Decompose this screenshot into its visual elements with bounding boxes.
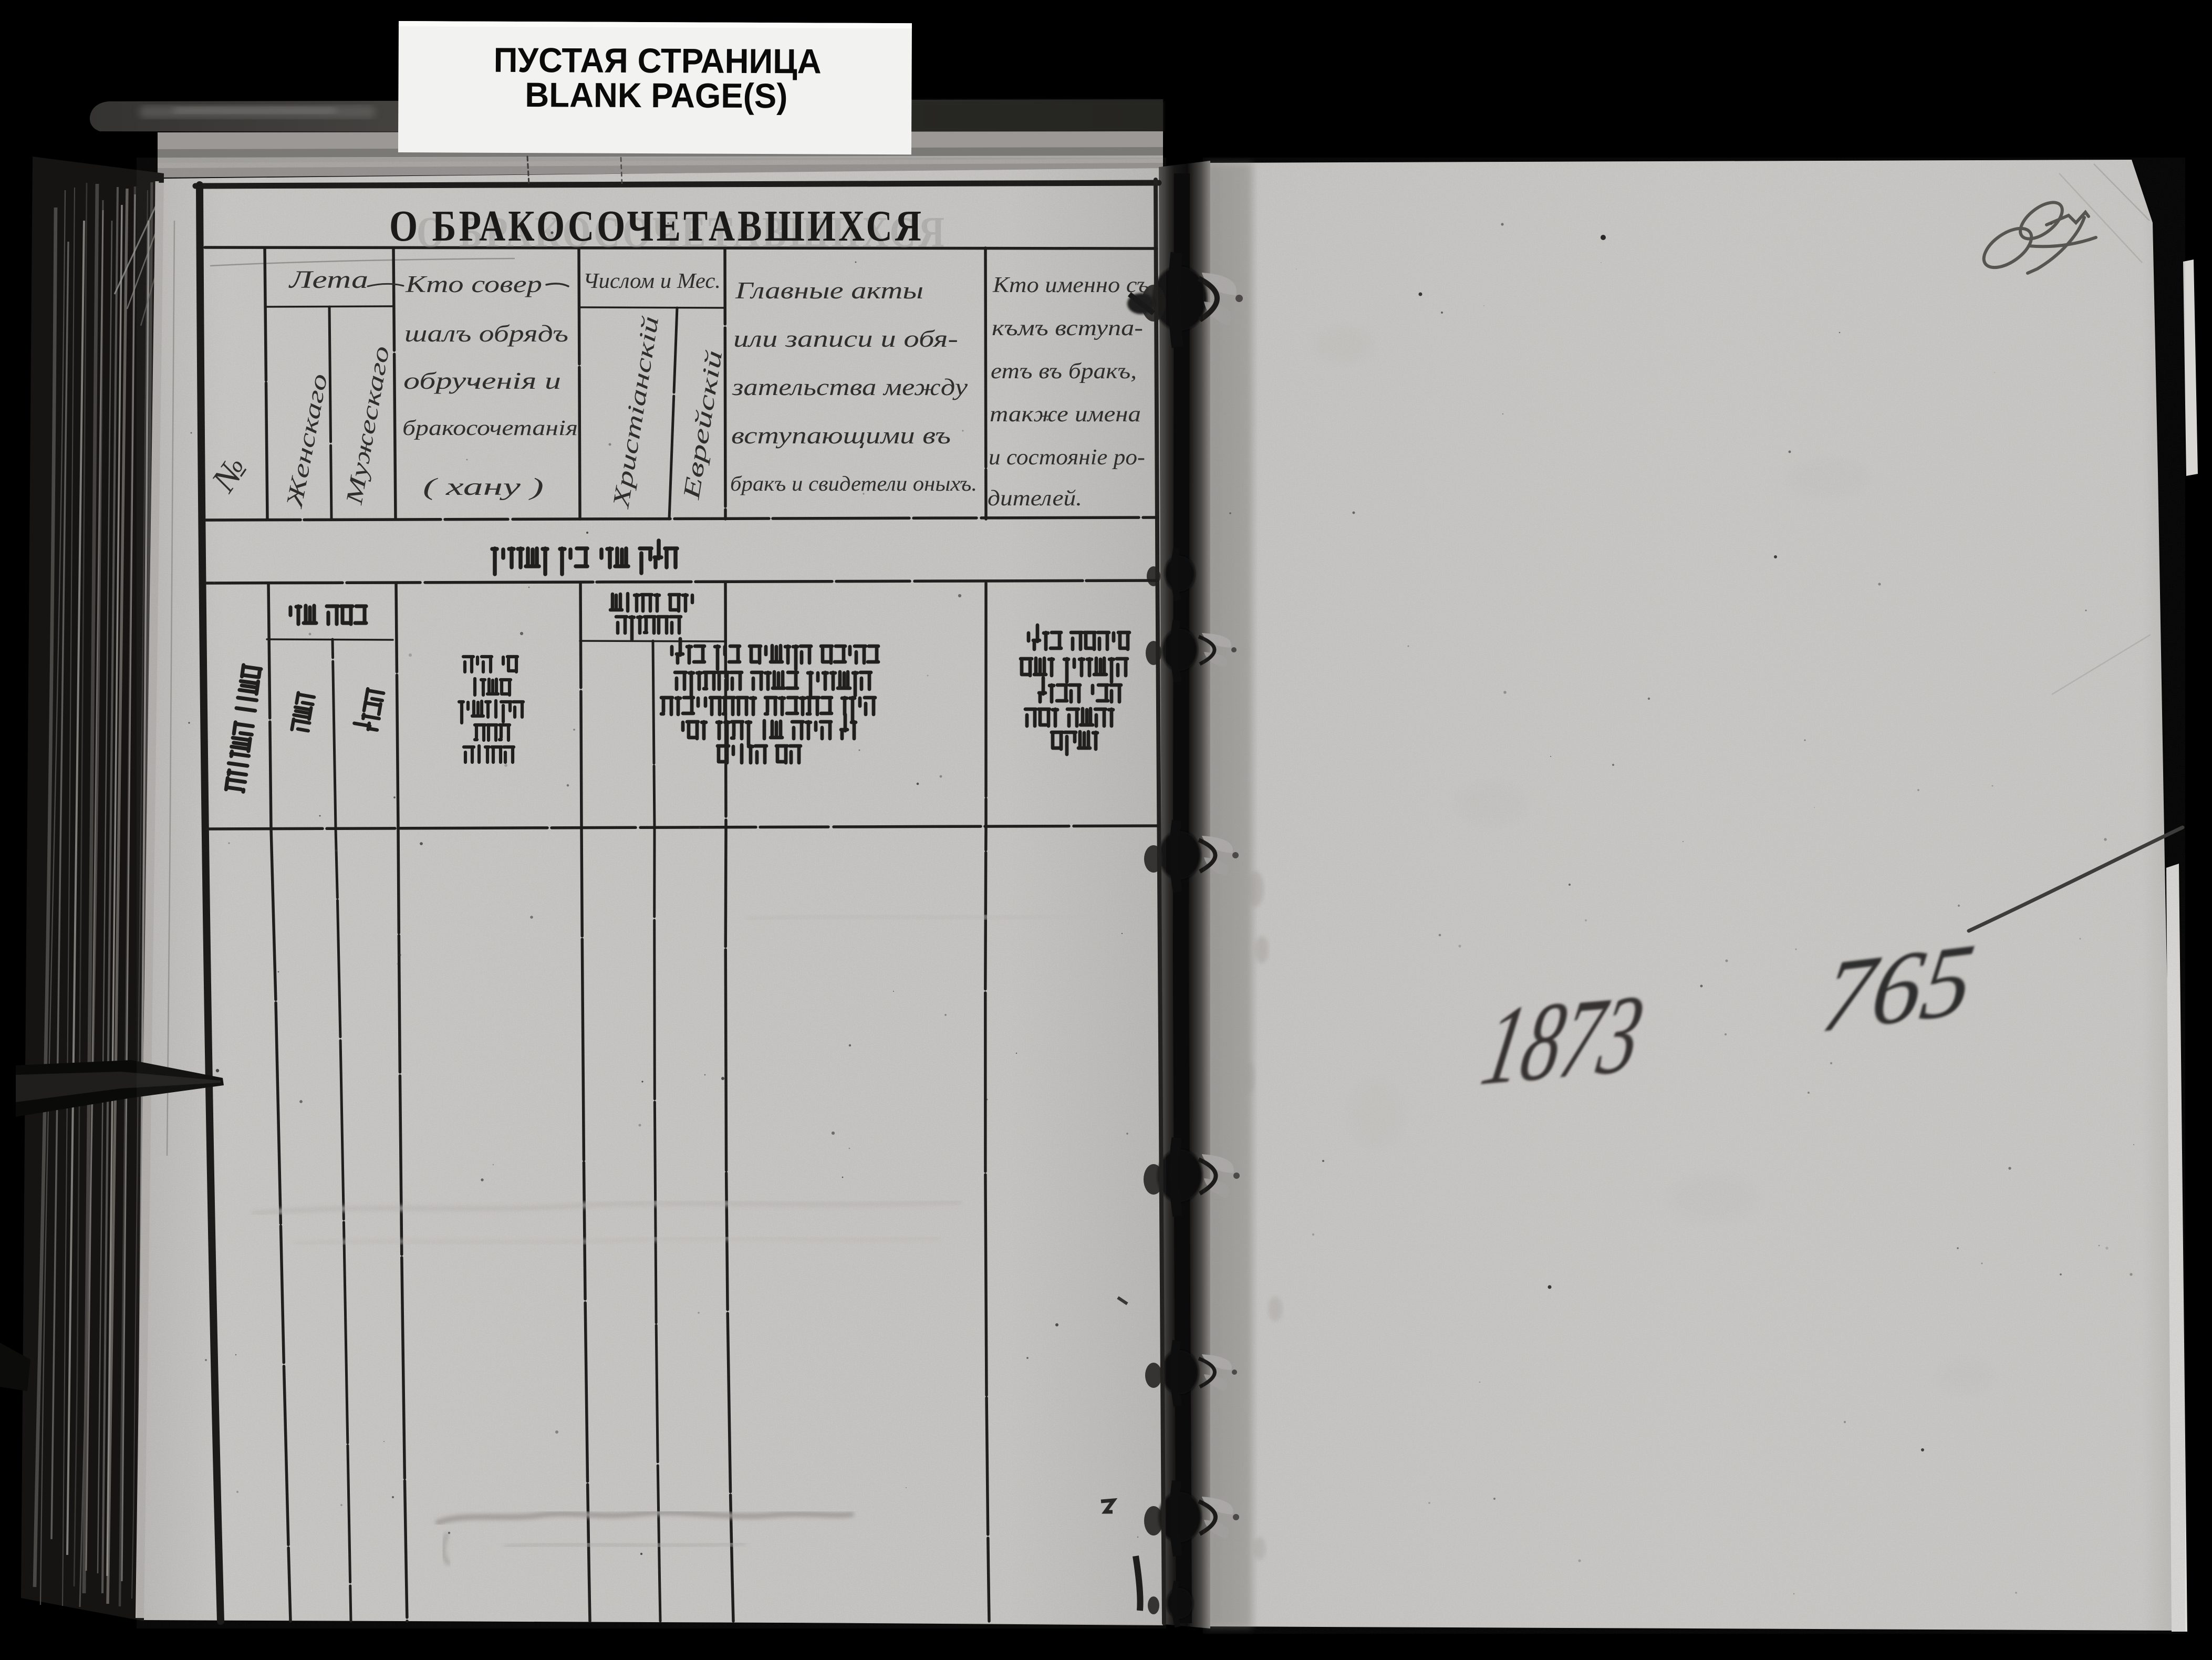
svg-text:ПУСТАЯ СТРАНИЦА: ПУСТАЯ СТРАНИЦА xyxy=(494,40,822,81)
svg-text:BLANK PAGE(S): BLANK PAGE(S) xyxy=(525,75,787,115)
